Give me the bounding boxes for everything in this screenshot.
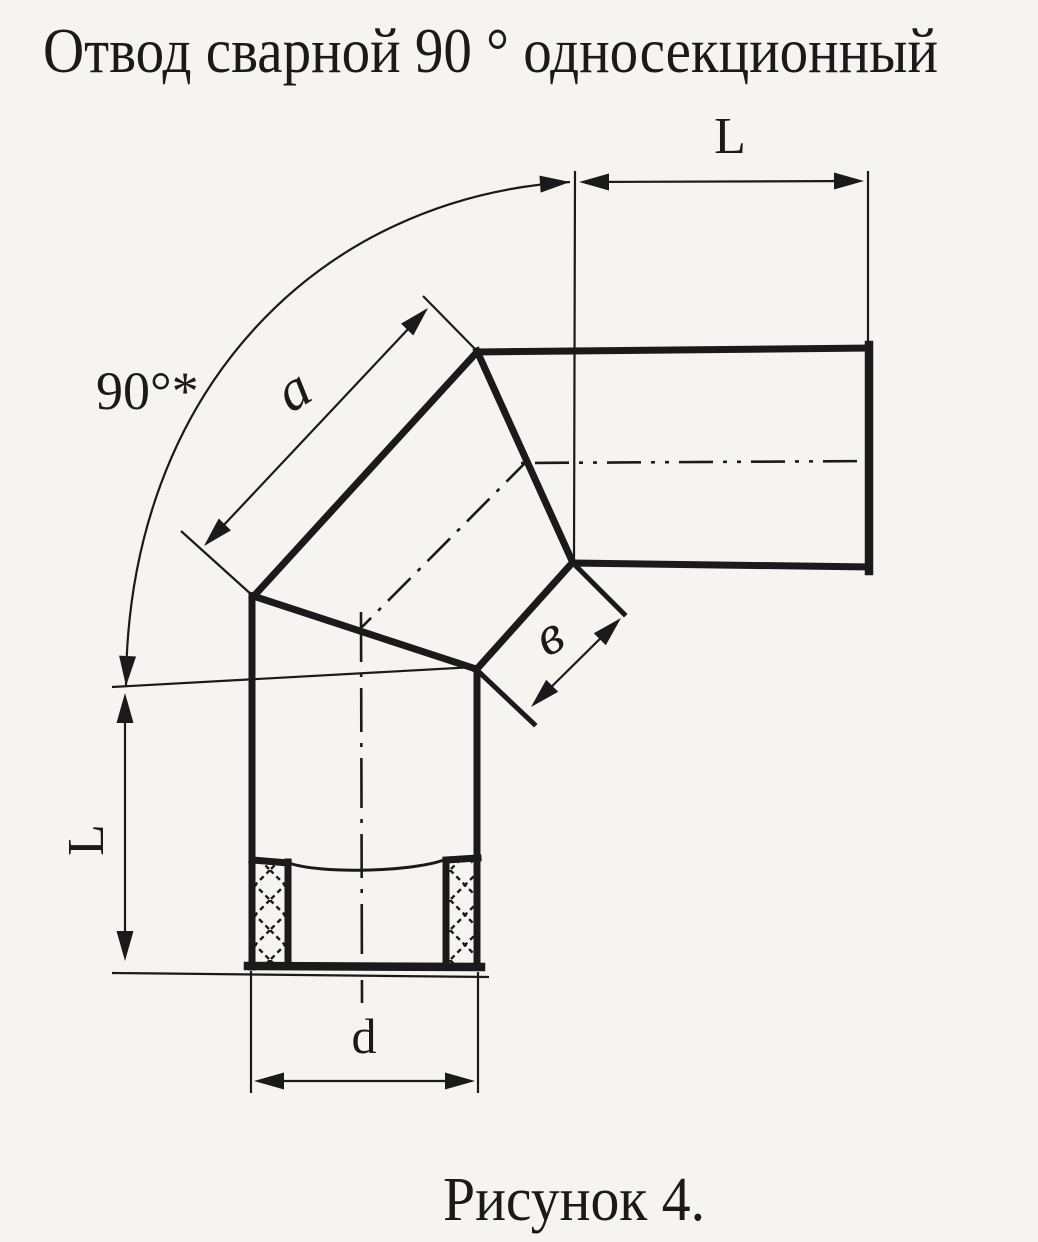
arrowhead — [117, 931, 134, 961]
wall-section-hatch-right — [448, 861, 475, 965]
arrowhead — [579, 174, 609, 191]
centerlines — [360, 459, 878, 1003]
arrowhead — [117, 693, 134, 723]
dimension-angle-90: 90°* — [96, 174, 571, 687]
figure-caption: Рисунок 4. — [443, 1166, 705, 1234]
extension-line-top — [112, 667, 475, 687]
extension-line-bottom — [112, 973, 489, 977]
dimension-label-d: d — [352, 1008, 377, 1064]
horizontal-pipe — [477, 345, 869, 571]
dimension-label-angle: 90°* — [96, 361, 199, 421]
dimension-a: a — [181, 296, 477, 596]
wall-section-hatch-left — [254, 862, 286, 965]
scanned-page: Отвод сварной 90 ° односекционный L 90°*… — [0, 0, 1038, 1242]
extension-line-bottom — [181, 531, 253, 596]
break-line — [289, 860, 444, 870]
drawing-title: Отвод сварной 90 ° односекционный — [43, 15, 938, 86]
dimension-d: d — [251, 971, 478, 1093]
centerline-vertical-pipe — [361, 612, 362, 1003]
arrowhead — [834, 173, 864, 190]
angle-arc — [126, 182, 570, 686]
dimension-L-top: L — [574, 108, 868, 561]
extension-line-inner-corner — [574, 171, 575, 561]
arrowhead — [254, 1073, 284, 1090]
pipe-bottom-edge — [573, 563, 869, 567]
weld-seam-upper — [477, 351, 573, 563]
extension-line-top — [423, 296, 477, 351]
wall-section-cap-right — [446, 858, 478, 860]
vertical-pipe — [248, 596, 481, 967]
pipe-top-edge — [477, 348, 869, 352]
weld-seam-lower — [253, 596, 476, 669]
arrowhead — [118, 656, 137, 687]
technical-drawing: Отвод сварной 90 ° односекционный L 90°*… — [0, 0, 1038, 1242]
extension-line-upper — [576, 566, 624, 614]
extension-line-lower — [479, 672, 534, 724]
wall-section-cap-left — [252, 860, 288, 863]
dimension-line — [584, 181, 858, 182]
dimension-label-L-top: L — [714, 108, 746, 165]
dimension-label-a: a — [263, 354, 322, 424]
arrowhead — [445, 1073, 475, 1090]
arrowhead — [539, 174, 570, 193]
centerline-miter-section — [360, 459, 529, 629]
dimension-label-L-left: L — [58, 824, 115, 856]
